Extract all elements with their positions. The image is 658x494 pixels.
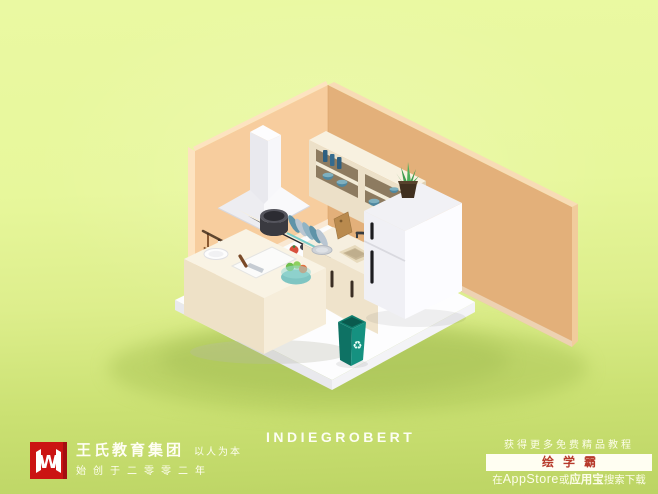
kitchen-scene-illustration: ♻ xyxy=(0,0,658,494)
download-instructions: 在AppStore或应用宝搜索下载 xyxy=(484,473,654,487)
download-or: 或 xyxy=(559,474,570,486)
founded-line: 始创于二零零二年 xyxy=(76,467,242,477)
promo-headline: 获得更多免费精品教程 xyxy=(484,441,654,451)
brand-footer: W 王氏教育集团以人为本 始创于二零零二年 xyxy=(30,442,242,479)
app-badge: 绘学霸 xyxy=(486,454,652,471)
download-suffix: 搜索下载 xyxy=(604,474,646,486)
artist-watermark: INDIEGROBERT xyxy=(266,429,415,445)
promo-block: 获得更多免费精品教程 绘学霸 在AppStore或应用宝搜索下载 xyxy=(484,441,654,487)
download-prefix: 在 xyxy=(492,474,503,486)
recycle-icon: ♻ xyxy=(353,339,363,352)
company-name: 王氏教育集团 xyxy=(76,442,184,459)
poster-canvas: ♻ W 王氏教育集团以人为本 始创于二零零二年 INDIEGROBERT 获得更… xyxy=(0,0,658,494)
island-plate xyxy=(204,249,228,260)
counter-plate xyxy=(312,246,332,255)
company-logo: W xyxy=(30,442,67,479)
logo-monogram: W xyxy=(39,452,59,473)
company-slogan: 以人为本 xyxy=(194,447,242,458)
store-name-alt: 应用宝 xyxy=(569,474,604,486)
store-name: AppStore xyxy=(503,472,559,486)
pot xyxy=(260,209,288,236)
